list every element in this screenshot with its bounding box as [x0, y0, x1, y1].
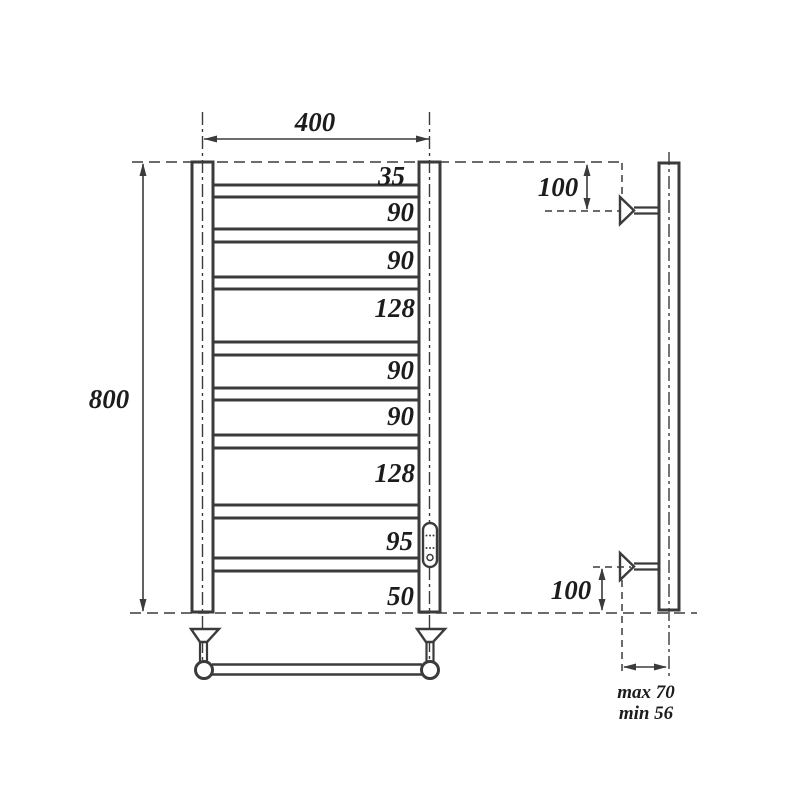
arrowhead-top — [140, 163, 147, 176]
bottom-mount-assembly — [191, 629, 445, 679]
arrowhead-left — [204, 136, 217, 143]
arrowhead-bottom — [584, 198, 591, 210]
gap-label: 90 — [387, 245, 415, 275]
top-bracket-cone — [620, 197, 634, 224]
arrowhead-top — [599, 568, 606, 580]
gap-label: 128 — [375, 458, 416, 488]
towel-rail-technical-drawing: 35 90 90 128 90 90 128 95 50 400 800 — [0, 0, 800, 800]
right-bracket-cone — [417, 629, 445, 642]
dimension-height-800: 800 — [89, 163, 147, 612]
dimension-top-offset-100: 100 — [538, 163, 622, 211]
arrowhead-right — [416, 136, 429, 143]
rung — [211, 388, 422, 400]
right-mount-cap — [422, 662, 439, 679]
gap-label: 128 — [375, 293, 416, 323]
side-bottom-bracket — [620, 553, 659, 580]
dimension-width-400: 400 — [204, 107, 429, 143]
height-dimension-label: 800 — [89, 384, 130, 414]
rung — [211, 229, 422, 242]
rung — [211, 505, 422, 518]
front-view: 35 90 90 128 90 90 128 95 50 — [191, 112, 445, 679]
left-bracket-cone — [191, 629, 219, 642]
rung — [211, 277, 422, 289]
arrowhead-bottom — [140, 599, 147, 612]
arrowhead-bottom — [599, 599, 606, 611]
gap-label: 95 — [386, 526, 413, 556]
gap-label: 90 — [387, 355, 415, 385]
arrowhead-left — [623, 664, 636, 671]
arrowhead-top — [584, 164, 591, 176]
bottom-offset-label: 100 — [551, 575, 592, 605]
top-offset-label: 100 — [538, 172, 579, 202]
wall-distance-min-label: min 56 — [619, 703, 674, 724]
drawing-canvas: 35 90 90 128 90 90 128 95 50 400 800 — [0, 0, 800, 800]
side-top-bracket — [620, 197, 659, 224]
arrowhead-right — [654, 664, 667, 671]
gap-label: 90 — [387, 401, 415, 431]
control-panel — [423, 523, 437, 567]
rung — [211, 435, 422, 448]
gap-label: 50 — [387, 581, 415, 611]
rung — [211, 342, 422, 355]
gap-label: 35 — [377, 161, 405, 191]
left-mount-cap — [196, 662, 213, 679]
width-dimension-label: 400 — [294, 107, 336, 137]
rung — [211, 558, 422, 571]
panel-power-button — [427, 555, 433, 561]
side-view — [620, 152, 679, 676]
gap-label: 90 — [387, 197, 415, 227]
wall-distance-max-label: max 70 — [617, 682, 675, 703]
